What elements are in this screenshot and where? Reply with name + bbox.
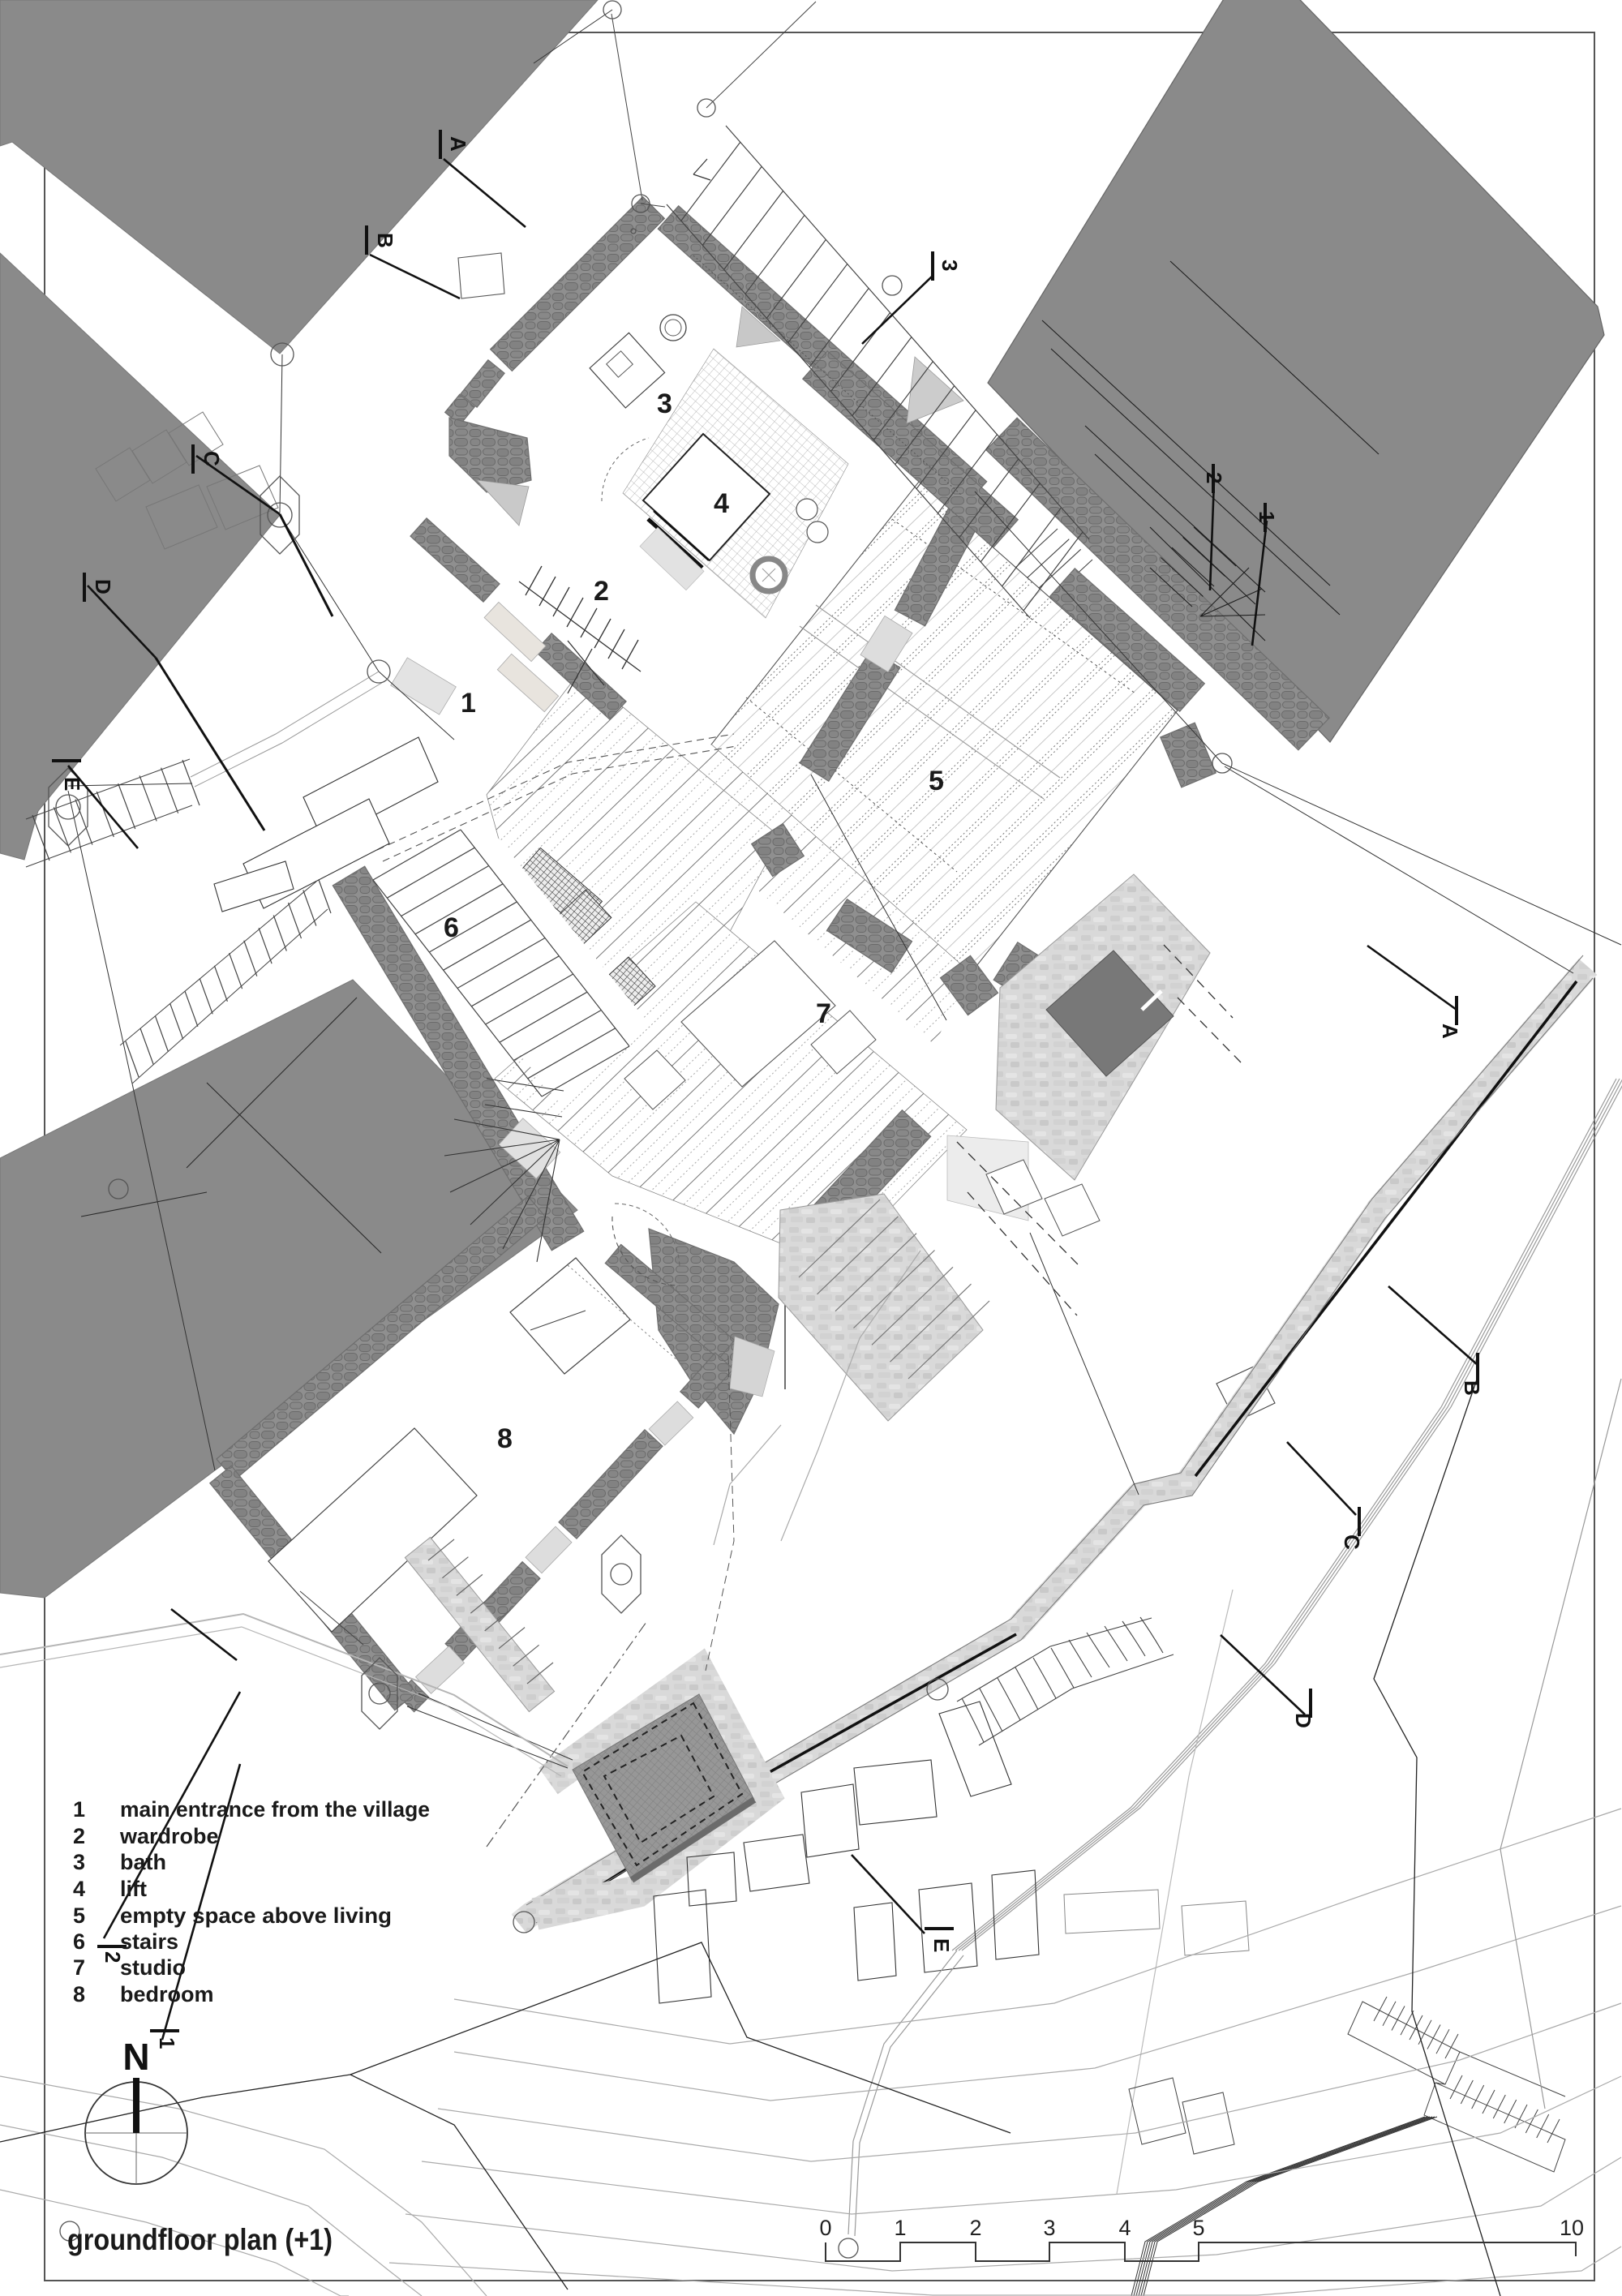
svg-text:lift: lift <box>120 1877 147 1901</box>
svg-text:wardrobe: wardrobe <box>119 1824 219 1848</box>
svg-text:empty space above living: empty space above living <box>120 1903 392 1928</box>
svg-text:3: 3 <box>657 388 672 419</box>
svg-text:1: 1 <box>73 1797 85 1822</box>
svg-text:8: 8 <box>73 1982 85 2006</box>
svg-text:1: 1 <box>894 2216 906 2240</box>
svg-text:stairs: stairs <box>120 1929 178 1954</box>
svg-text:main entrance from the village: main entrance from the village <box>120 1797 430 1822</box>
svg-text:3: 3 <box>1043 2216 1055 2240</box>
svg-text:0: 0 <box>819 2216 831 2240</box>
svg-text:2: 2 <box>594 576 609 607</box>
svg-text:groundfloor plan (+1): groundfloor plan (+1) <box>67 2223 333 2256</box>
svg-text:4: 4 <box>73 1877 85 1901</box>
svg-text:7: 7 <box>816 998 831 1029</box>
svg-text:2: 2 <box>969 2216 981 2240</box>
svg-text:4: 4 <box>714 488 729 519</box>
svg-text:1: 1 <box>155 2037 179 2049</box>
svg-text:2: 2 <box>73 1824 85 1848</box>
svg-text:bath: bath <box>120 1850 166 1874</box>
svg-text:B: B <box>373 233 397 248</box>
svg-text:E: E <box>929 1938 954 1952</box>
svg-text:bedroom: bedroom <box>120 1982 214 2006</box>
svg-text:N: N <box>122 2036 149 2078</box>
svg-text:5: 5 <box>929 766 944 796</box>
svg-text:4: 4 <box>1118 2216 1131 2240</box>
svg-text:D: D <box>91 579 115 594</box>
svg-text:10: 10 <box>1560 2216 1584 2240</box>
svg-text:7: 7 <box>73 1955 85 1980</box>
svg-text:2: 2 <box>1202 472 1226 483</box>
svg-text:1: 1 <box>461 688 476 719</box>
svg-text:A: A <box>1438 1024 1462 1039</box>
svg-text:C: C <box>1340 1534 1364 1550</box>
svg-text:5: 5 <box>73 1903 85 1928</box>
svg-text:B: B <box>1460 1380 1484 1396</box>
svg-text:3: 3 <box>938 260 962 271</box>
svg-text:5: 5 <box>1192 2216 1204 2240</box>
svg-text:C: C <box>200 451 224 466</box>
svg-text:8: 8 <box>497 1423 513 1454</box>
svg-text:D: D <box>1291 1713 1315 1728</box>
svg-text:6: 6 <box>444 912 459 943</box>
svg-text:1: 1 <box>1255 511 1279 522</box>
svg-text:studio: studio <box>120 1955 186 1980</box>
svg-text:6: 6 <box>73 1929 85 1954</box>
svg-text:E: E <box>60 777 84 791</box>
svg-text:3: 3 <box>73 1850 85 1874</box>
svg-text:A: A <box>446 136 470 152</box>
